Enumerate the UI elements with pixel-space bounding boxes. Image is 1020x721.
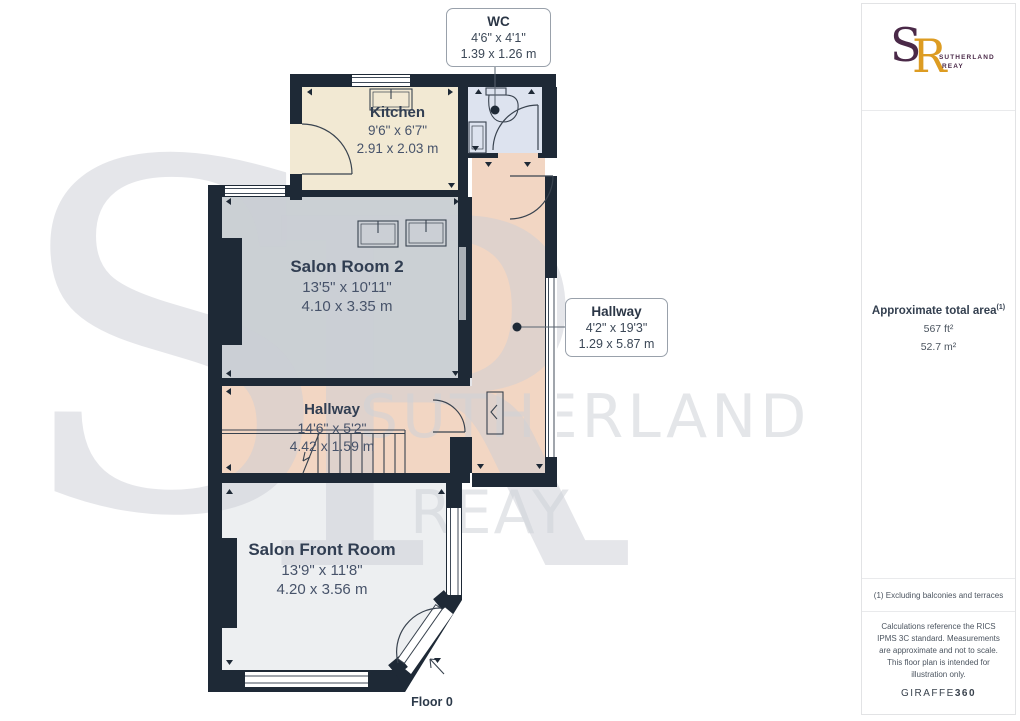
watermark-line1: SUTHERLAND xyxy=(360,382,810,452)
salon-room-2-window xyxy=(225,186,285,196)
wc-callout: WC 4'6" x 4'1" 1.39 x 1.26 m xyxy=(446,8,551,67)
agency-name-line1: SUTHERLAND xyxy=(939,53,995,62)
room-dims-metric: 1.39 x 1.26 m xyxy=(449,46,548,62)
total-area-block: Approximate total area(1) 567 ft² 52.7 m… xyxy=(862,304,1015,353)
agency-name-line2: REAY xyxy=(939,62,995,71)
floorplan-page: { "plan": { "floor_label": "Floor 0", "r… xyxy=(0,0,1020,721)
wc-leader-dot xyxy=(491,106,500,115)
total-area-footnote-marker: (1) xyxy=(997,304,1006,311)
total-area-imperial: 567 ft² xyxy=(862,323,1015,335)
room-name: WC xyxy=(449,13,548,30)
front-room-side-window xyxy=(447,508,461,595)
disclaimer: Calculations reference the RICS IPMS 3C … xyxy=(862,621,1015,681)
agency-logo: S R SUTHERLAND REAY xyxy=(862,4,1015,111)
footnote: (1) Excluding balconies and terraces xyxy=(862,578,1015,612)
chimney-breast xyxy=(208,238,242,345)
agency-name: SUTHERLAND REAY xyxy=(939,53,995,71)
total-area-title: Approximate total area(1) xyxy=(862,304,1015,317)
total-area-title-text: Approximate total area xyxy=(872,305,997,317)
watermark: S R SUTHERLAND REAY xyxy=(10,63,810,679)
salon-room-opening xyxy=(459,247,466,320)
room-dims-metric: 1.29 x 5.87 m xyxy=(568,336,665,352)
hallway-window xyxy=(546,278,557,457)
front-entrance-opening xyxy=(545,158,557,176)
room-dims-imperial: 4'6" x 4'1" xyxy=(449,30,548,46)
kitchen-window xyxy=(352,75,410,86)
hallway-callout: Hallway 4'2" x 19'3" 1.29 x 5.87 m xyxy=(565,298,668,357)
brand-360: 360 xyxy=(955,688,976,699)
info-panel: S R SUTHERLAND REAY Approximate total ar… xyxy=(861,3,1016,715)
total-area-metric: 52.7 m² xyxy=(862,341,1015,353)
brand-giraffe: GIRAFFE xyxy=(901,688,955,699)
room-dims-imperial: 4'2" x 19'3" xyxy=(568,320,665,336)
watermark-line2: REAY xyxy=(410,478,571,548)
room-name: Hallway xyxy=(568,303,665,320)
hallway-leader-dot xyxy=(513,323,522,332)
giraffe360-brand: GIRAFFE360 xyxy=(862,688,1015,699)
front-room-bay-window xyxy=(245,672,368,687)
